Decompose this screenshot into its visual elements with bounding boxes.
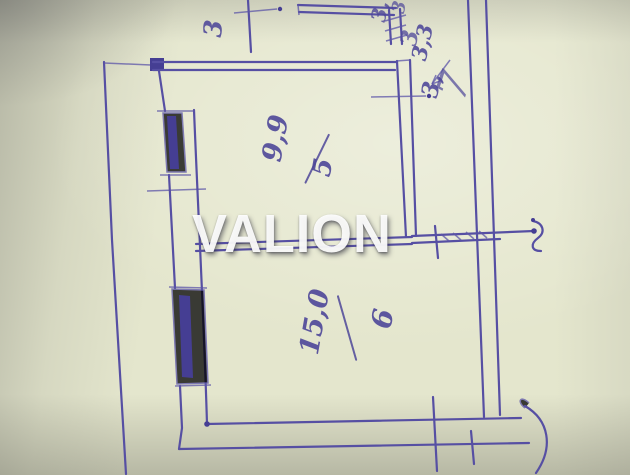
balcony-rail xyxy=(104,58,206,474)
interior-vertical-wall xyxy=(396,60,416,237)
window-symbol-room6 xyxy=(169,287,211,386)
valion-watermark: VALION xyxy=(192,207,392,261)
room-5-area: 9,9 xyxy=(259,113,294,164)
right-outer-wall xyxy=(468,0,500,417)
floor-plan-photo: 9,9 5 15,0 6 3,3 3, 7 3 3, 3 3 VALION xyxy=(0,0,630,475)
door-swing-arc xyxy=(525,406,547,473)
window-symbol-room5 xyxy=(157,111,195,175)
bottom-wall xyxy=(179,397,547,473)
section-mark-squiggle xyxy=(533,221,543,251)
top-wall xyxy=(153,62,397,70)
scribble-3-top-left: 3 xyxy=(200,19,226,39)
